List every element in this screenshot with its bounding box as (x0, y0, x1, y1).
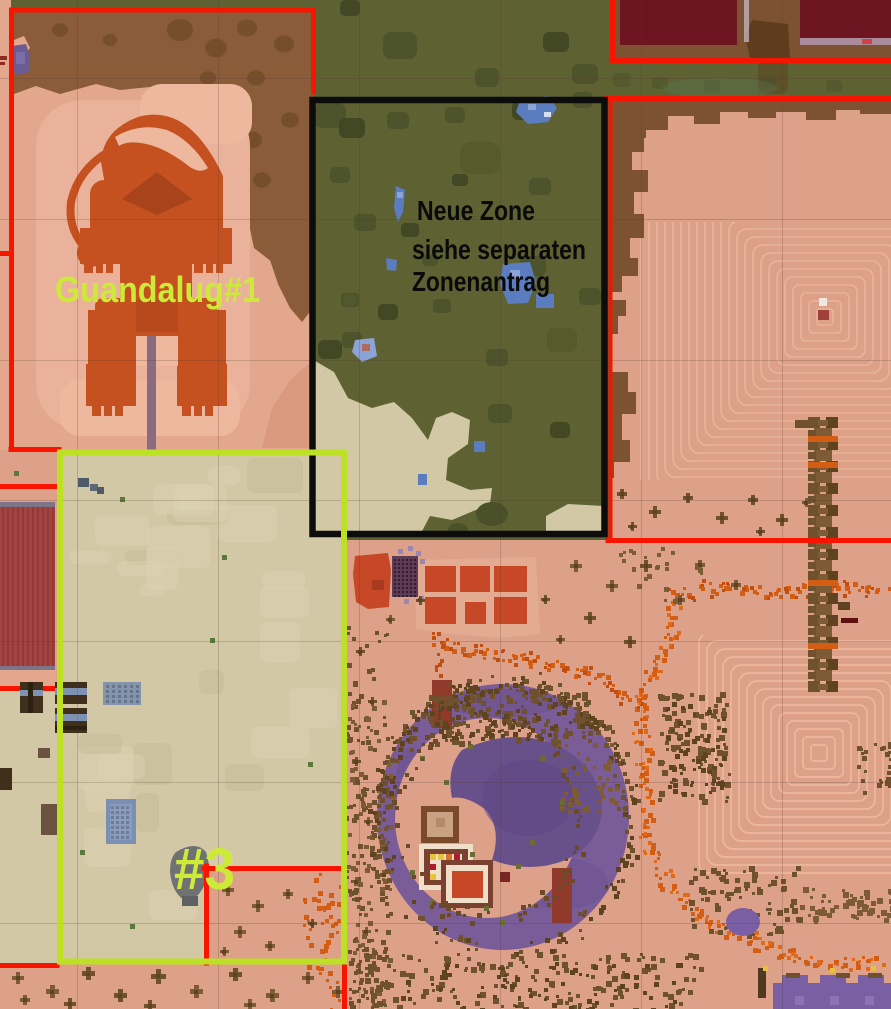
svg-text:Guandalug#1: Guandalug#1 (55, 269, 260, 310)
svg-text:Neue Zone: Neue Zone (417, 195, 535, 226)
svg-text:Zonenantrag: Zonenantrag (412, 266, 550, 297)
svg-text:#3: #3 (174, 837, 235, 902)
svg-text:siehe separaten: siehe separaten (412, 234, 586, 265)
